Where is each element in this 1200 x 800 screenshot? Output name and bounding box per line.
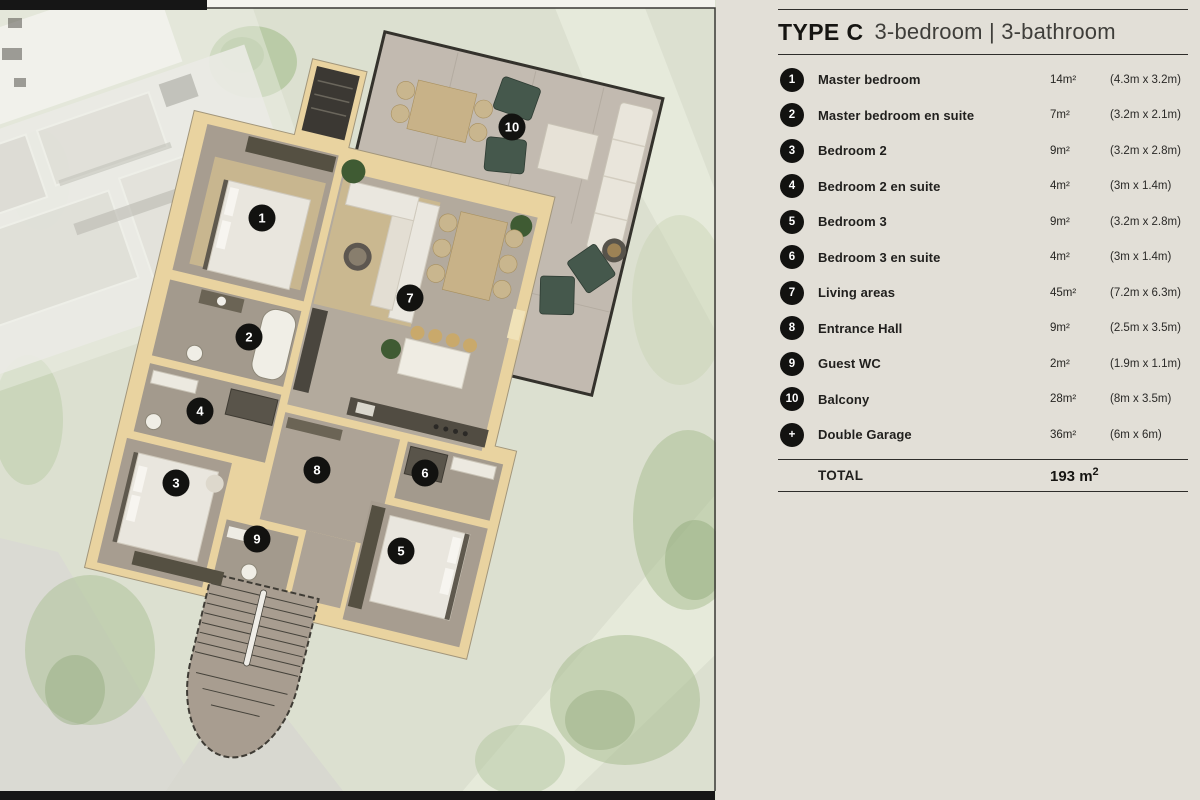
plan-marker-1: 1 [249, 205, 276, 232]
room-name: Bedroom 3 [818, 214, 1050, 229]
room-dimensions: (3.2m x 2.1m) [1110, 109, 1188, 121]
svg-text:1: 1 [258, 211, 265, 226]
legend-badge-7: 7 [780, 281, 804, 305]
svg-text:4: 4 [196, 404, 204, 419]
plan-marker-3: 3 [163, 470, 190, 497]
legend-badge-plus: + [780, 423, 804, 447]
floor-plan-rendering: 1 2 3 4 5 6 7 8 9 [0, 0, 770, 800]
room-dimensions: (1.9m x 1.1m) [1110, 358, 1188, 370]
room-dimensions: (6m x 6m) [1110, 429, 1188, 441]
room-name: Living areas [818, 285, 1050, 300]
room-dimensions: (2.5m x 3.5m) [1110, 322, 1188, 334]
room-dimensions: (3m x 1.4m) [1110, 180, 1188, 192]
room-name: Guest WC [818, 356, 1050, 371]
svg-text:9: 9 [253, 532, 260, 547]
legend-row-10: 10 Balcony 28m² (8m x 3.5m) [778, 382, 1188, 418]
room-name: Balcony [818, 392, 1050, 407]
type-subtitle: 3-bedroom | 3-bathroom [874, 19, 1115, 45]
room-name: Entrance Hall [818, 321, 1050, 336]
legend-badge-4: 4 [780, 174, 804, 198]
legend-row-4: 4 Bedroom 2 en suite 4m² (3m x 1.4m) [778, 169, 1188, 205]
total-row: TOTAL 193 m2 [778, 460, 1188, 491]
legend-badge-10: 10 [780, 387, 804, 411]
plan-marker-8: 8 [304, 457, 331, 484]
plan-type-title: TYPE C 3-bedroom | 3-bathroom [778, 10, 1188, 54]
legend-badge-3: 3 [780, 139, 804, 163]
legend-row-5: 5 Bedroom 3 9m² (3.2m x 2.8m) [778, 204, 1188, 240]
room-area: 14m² [1050, 74, 1110, 86]
room-name: Bedroom 3 en suite [818, 250, 1050, 265]
plan-marker-6: 6 [412, 460, 439, 487]
legend-badge-5: 5 [780, 210, 804, 234]
legend-badge-2: 2 [780, 103, 804, 127]
plan-marker-9: 9 [244, 526, 271, 553]
room-name: Double Garage [818, 427, 1050, 442]
legend-rows: 1 Master bedroom 14m² (4.3m x 3.2m) 2 Ma… [778, 55, 1188, 453]
plan-marker-5: 5 [388, 538, 415, 565]
room-dimensions: (7.2m x 6.3m) [1110, 287, 1188, 299]
svg-text:6: 6 [421, 466, 428, 481]
svg-text:7: 7 [406, 291, 413, 306]
room-area: 4m² [1050, 251, 1110, 263]
room-dimensions: (3.2m x 2.8m) [1110, 145, 1188, 157]
plan-marker-4: 4 [187, 398, 214, 425]
svg-text:10: 10 [505, 120, 519, 135]
total-rule-bottom [778, 491, 1188, 492]
room-name: Master bedroom [818, 72, 1050, 87]
room-area: 4m² [1050, 180, 1110, 192]
legend-row-8: 8 Entrance Hall 9m² (2.5m x 3.5m) [778, 311, 1188, 347]
plan-marker-7: 7 [397, 285, 424, 312]
room-area: 2m² [1050, 358, 1110, 370]
total-label: TOTAL [818, 468, 1050, 483]
legend-row-garage: + Double Garage 36m² (6m x 6m) [778, 417, 1188, 453]
total-value: 193 m2 [1050, 466, 1188, 485]
legend-badge-6: 6 [780, 245, 804, 269]
room-area: 9m² [1050, 216, 1110, 228]
legend-badge-1: 1 [780, 68, 804, 92]
room-name: Master bedroom en suite [818, 108, 1050, 123]
room-area: 7m² [1050, 109, 1110, 121]
svg-text:3: 3 [172, 476, 179, 491]
room-dimensions: (3m x 1.4m) [1110, 251, 1188, 263]
legend-panel: TYPE C 3-bedroom | 3-bathroom 1 Master b… [716, 0, 1200, 800]
room-area: 45m² [1050, 287, 1110, 299]
svg-text:5: 5 [397, 544, 404, 559]
legend-row-1: 1 Master bedroom 14m² (4.3m x 3.2m) [778, 62, 1188, 98]
legend-row-9: 9 Guest WC 2m² (1.9m x 1.1m) [778, 346, 1188, 382]
room-area: 9m² [1050, 145, 1110, 157]
floorplan-page: 1 2 3 4 5 6 7 8 9 [0, 0, 1200, 800]
room-dimensions: (4.3m x 3.2m) [1110, 74, 1188, 86]
legend-badge-8: 8 [780, 316, 804, 340]
type-label: TYPE C [778, 19, 863, 46]
room-dimensions: (8m x 3.5m) [1110, 393, 1188, 405]
plan-marker-10: 10 [499, 114, 526, 141]
room-area: 9m² [1050, 322, 1110, 334]
legend-badge-9: 9 [780, 352, 804, 376]
svg-text:2: 2 [245, 330, 252, 345]
svg-text:8: 8 [313, 463, 320, 478]
room-area: 36m² [1050, 429, 1110, 441]
room-area: 28m² [1050, 393, 1110, 405]
legend-row-2: 2 Master bedroom en suite 7m² (3.2m x 2.… [778, 98, 1188, 134]
room-name: Bedroom 2 [818, 143, 1050, 158]
plan-marker-2: 2 [236, 324, 263, 351]
room-dimensions: (3.2m x 2.8m) [1110, 216, 1188, 228]
legend-row-3: 3 Bedroom 2 9m² (3.2m x 2.8m) [778, 133, 1188, 169]
legend-row-7: 7 Living areas 45m² (7.2m x 6.3m) [778, 275, 1188, 311]
legend-row-6: 6 Bedroom 3 en suite 4m² (3m x 1.4m) [778, 240, 1188, 276]
room-name: Bedroom 2 en suite [818, 179, 1050, 194]
total-section: TOTAL 193 m2 [778, 459, 1188, 492]
